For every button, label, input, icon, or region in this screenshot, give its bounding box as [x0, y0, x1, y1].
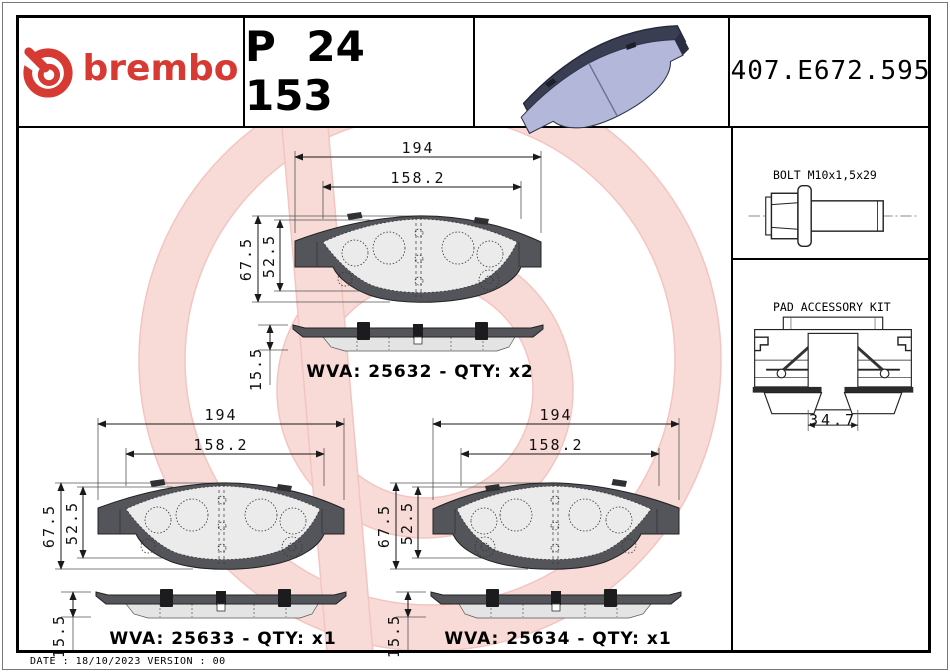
- header: brembo P 24 153 407.E672.595: [16, 15, 931, 128]
- reference-code-cell: 407.E672.595: [730, 15, 931, 126]
- dim-overall-height: 67.5: [375, 491, 393, 561]
- dim-pad-height: 52.5: [260, 221, 278, 291]
- pad-drawing-group-2: 194 158.2 67.5 52.5 15.5 WVA: 25633 - QT…: [43, 400, 373, 658]
- kit-width-dim: 34.7: [783, 411, 883, 429]
- product-image-cell: [475, 15, 730, 126]
- brake-pad-3d-image: [487, 23, 717, 151]
- dim-overall-width: 194: [516, 406, 596, 424]
- brand-wordmark: brembo: [83, 48, 239, 89]
- date-version-line: DATE : 18/10/2023 VERSION : 00: [30, 656, 226, 667]
- brembo-datasheet-page: brembo P 24 153 407.E672.595: [0, 0, 950, 672]
- brembo-roundel-icon: [21, 43, 75, 99]
- kit-title: PAD ACCESSORY KIT: [773, 300, 931, 315]
- pad-drawing-group-1: 194 158.2 67.5 52.5 15.5 WVA: 25632 - QT…: [240, 133, 570, 391]
- wva-qty-label: WVA: 25632 - QTY: x2: [280, 362, 560, 382]
- flange-hex-bolt-icon: [743, 178, 923, 254]
- wva-qty-label: WVA: 25633 - QTY: x1: [83, 629, 363, 649]
- dim-overall-height: 67.5: [237, 224, 255, 294]
- dim-pad-width: 158.2: [516, 436, 596, 454]
- dim-pad-width: 158.2: [378, 169, 458, 187]
- dim-overall-width: 194: [181, 406, 261, 424]
- brand-logo-cell: brembo: [16, 15, 245, 126]
- part-number: P 24 153: [245, 22, 473, 120]
- bolt-info-box: BOLT M10x1,5x29 05.E659.013 - x2: [733, 138, 931, 260]
- part-number-cell: P 24 153: [245, 15, 475, 126]
- reference-code: 407.E672.595: [731, 56, 931, 86]
- pad-drawing-group-3: 194 158.2 67.5 52.5 15.5 WVA: 25634 - QT…: [378, 400, 708, 658]
- dim-overall-height: 67.5: [40, 491, 58, 561]
- dim-overall-width: 194: [378, 139, 458, 157]
- wva-qty-label: WVA: 25634 - QTY: x1: [418, 629, 698, 649]
- dim-pad-height: 52.5: [398, 488, 416, 558]
- dim-thickness: 15.5: [247, 334, 265, 404]
- dim-pad-height: 52.5: [63, 488, 81, 558]
- accessory-kit-box: PAD ACCESSORY KIT 07.E658.071 - x1: [733, 270, 931, 671]
- dim-pad-width: 158.2: [181, 436, 261, 454]
- sidebar: BOLT M10x1,5x29 05.E659.013 - x2 PAD ACC…: [731, 128, 931, 653]
- dim-thickness: 15.5: [385, 601, 403, 671]
